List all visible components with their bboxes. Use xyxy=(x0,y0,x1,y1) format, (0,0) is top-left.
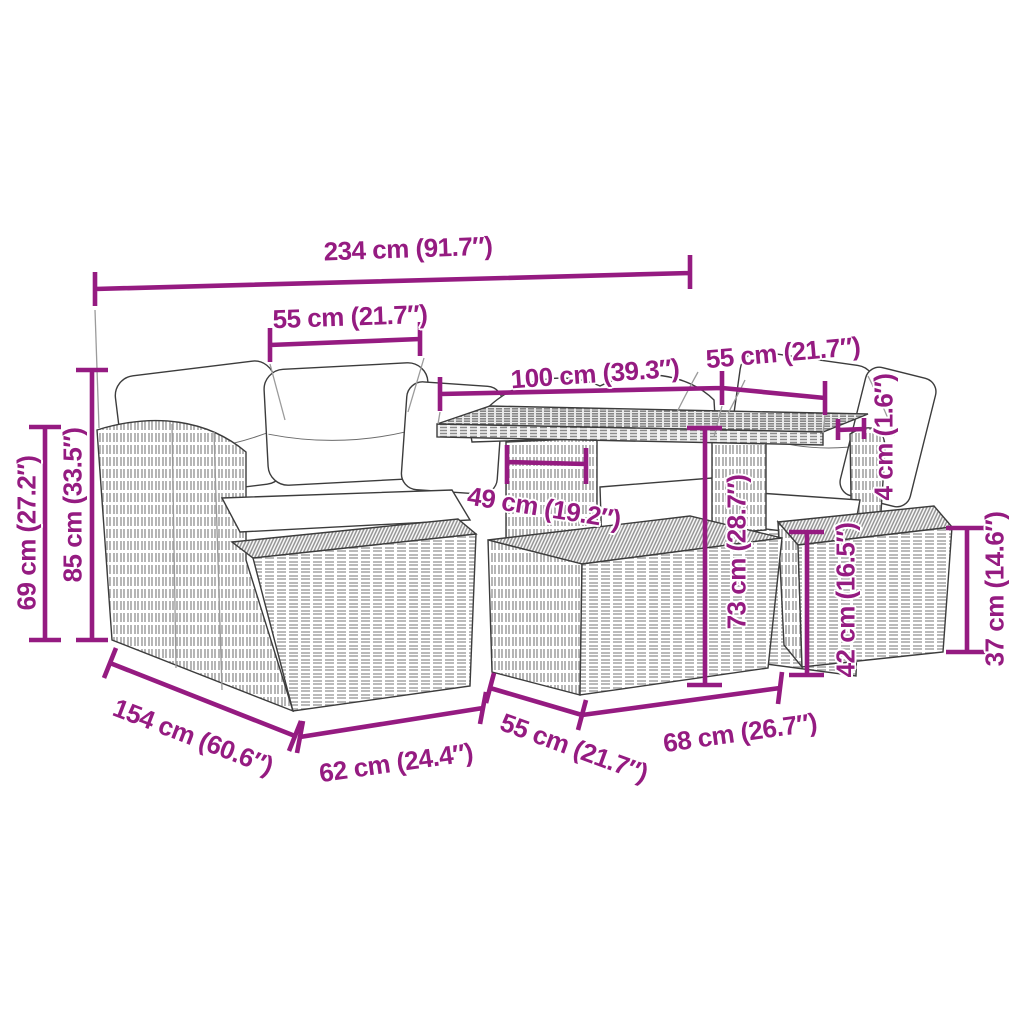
dim-label-stool-mid-height: 42 cm (16.5″) xyxy=(831,523,862,678)
dim-label-back-height: 69 cm (27.2″) xyxy=(12,456,43,611)
sofa-ottoman-front xyxy=(253,534,476,711)
dimension-diagram: 234 cm (91.7″) 55 cm (21.7″) 100 cm (39.… xyxy=(0,0,1024,1024)
right-stool-front xyxy=(798,527,952,667)
dim-label-table-height: 73 cm (28.7″) xyxy=(722,475,753,630)
dim-label-seat-width-left: 55 cm (21.7″) xyxy=(272,299,428,335)
dim-label-stool-right-height: 37 cm (14.6″) xyxy=(980,512,1011,667)
middle-stool-side xyxy=(488,540,582,695)
dim-label-tabletop-thickness: 4 cm (1.6″) xyxy=(869,374,900,501)
dim-label-total-height: 85 cm (33.5″) xyxy=(58,428,89,583)
dim-label-total-width: 234 cm (91.7″) xyxy=(323,231,493,268)
